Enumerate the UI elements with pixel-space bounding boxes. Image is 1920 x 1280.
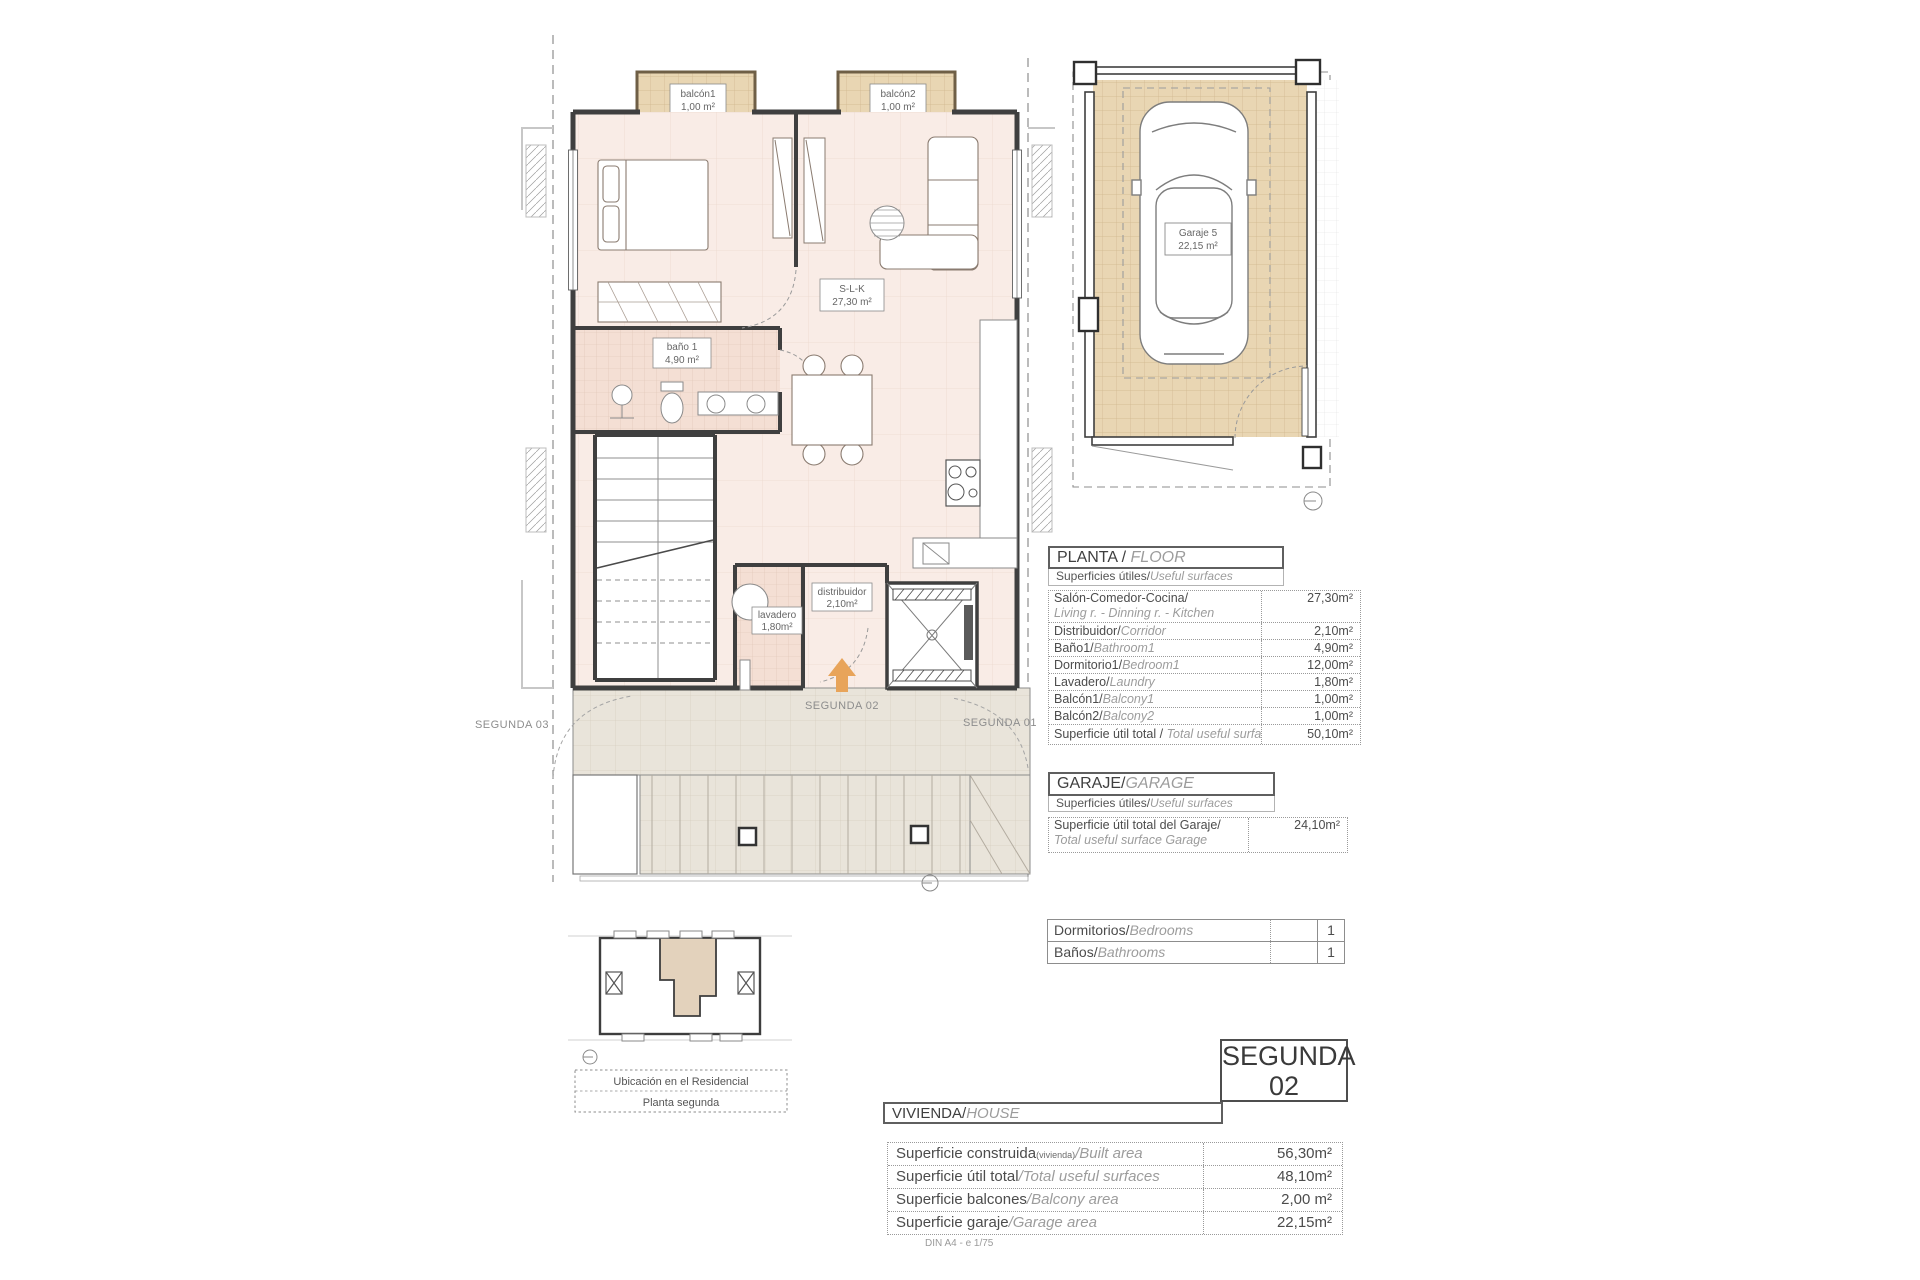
row-label-en: Bedroom1 [1122, 658, 1180, 672]
pillar [739, 828, 756, 845]
toilet [661, 393, 683, 423]
table-row: Baño1/Bathroom1 4,90m² [1049, 639, 1360, 656]
unit-badge-line1: SEGUNDA [1222, 1041, 1346, 1071]
garage-area: 22,15 m² [1178, 241, 1218, 252]
balcony1-area: 1,00 m² [681, 102, 716, 113]
stairs [597, 437, 713, 678]
slk-label: S-L-K 27,30 m² [820, 279, 884, 311]
viv-label-en: /Garage area [1009, 1214, 1097, 1231]
terrace [553, 688, 1030, 881]
garaje-table-subtitle: Superficies útiles/Useful surfaces [1048, 796, 1275, 812]
row-value: 12,00m² [1261, 657, 1360, 673]
neighbor-rail-left2 [526, 448, 546, 532]
garaje-table: Superficie útil total del Garaje/ Total … [1048, 817, 1348, 853]
row-label-es: Salón-Comedor-Cocina/ [1054, 591, 1188, 605]
bath-area: 4,90 m² [665, 355, 700, 366]
garaje-title-es: GARAJE/ [1057, 775, 1125, 792]
viv-label-es: Superficie balcones [896, 1191, 1027, 1208]
location-line2: Planta segunda [643, 1097, 720, 1109]
mirror-right [1247, 180, 1256, 195]
viv-value: 56,30m² [1203, 1143, 1342, 1165]
row-label-en: Living r. - Dinning r. - Kitchen [1054, 606, 1214, 620]
garaje-subtitle-en: Useful surfaces [1150, 796, 1233, 810]
neighbor-rail-right2 [1032, 448, 1052, 532]
row-label-en: Corridor [1121, 624, 1166, 638]
total-label-en: Total useful surface [1167, 727, 1261, 741]
unit-badge: SEGUNDA 02 [1220, 1039, 1348, 1102]
terrace-left-landing [573, 775, 637, 874]
viv-label-es: Superficie construida [896, 1145, 1036, 1162]
neighbor-rail-left [526, 145, 546, 217]
orientation-mark-icon [922, 875, 938, 891]
pillow [603, 166, 619, 202]
viv-label-es: Superficie garaje [896, 1214, 1009, 1231]
row-value: 2,10m² [1261, 623, 1360, 639]
planta-table-title: PLANTA / FLOOR [1048, 546, 1284, 569]
table-row: Dormitorio1/Bedroom1 12,00m² [1049, 656, 1360, 673]
neighbor-right-label: SEGUNDA 01 [963, 717, 1037, 729]
laundry-name: lavadero [758, 610, 797, 621]
planta-subtitle-es: Superficies útiles/ [1056, 569, 1150, 583]
neighbor-left-label: SEGUNDA 03 [475, 719, 549, 731]
vivienda-table: Superficie construida(vivienda)/Built ar… [887, 1142, 1343, 1235]
mirror-left [1132, 180, 1141, 195]
vivienda-table-title: VIVIENDA/HOUSE [883, 1102, 1223, 1124]
row-label-en: Balcony1 [1103, 692, 1154, 706]
garage-label: Garaje 5 22,15 m² [1165, 223, 1231, 255]
wardrobe [598, 282, 721, 322]
count-value: 1 [1317, 942, 1344, 963]
planta-subtitle-en: Useful surfaces [1150, 569, 1233, 583]
table-row: Baños/Bathrooms 1 [1048, 941, 1344, 963]
unit-badge-line2: 02 [1222, 1071, 1346, 1101]
basin-counter [698, 392, 778, 415]
row-label-es: Balcón2/ [1054, 709, 1103, 723]
planta-table-subtitle: Superficies útiles/Useful surfaces [1048, 569, 1284, 586]
balcony1-name: balcón1 [680, 89, 715, 100]
slk-area: 27,30 m² [832, 297, 872, 308]
planta-title-en: FLOOR [1131, 549, 1186, 566]
viv-label-sub: (vivienda) [1036, 1150, 1075, 1160]
row-label-en: Total useful surface Garage [1054, 833, 1207, 847]
table-row: Superficie balcones/Balcony area 2,00 m² [888, 1188, 1342, 1211]
row-label-es: Superficie útil total del Garaje/ [1054, 818, 1221, 832]
garage-side-strip [1315, 80, 1339, 437]
laundry-area: 1,80m² [761, 622, 793, 633]
viv-label-es: Superficie útil total [896, 1168, 1019, 1185]
location-label-box: Ubicación en el Residencial Planta segun… [575, 1070, 787, 1112]
count-label-en: Bathrooms [1098, 944, 1166, 960]
row-value: 24,10m² [1248, 818, 1347, 852]
row-label-es: Dormitorio1/ [1054, 658, 1122, 672]
floorplan-sheet: balcón1 1,00 m² balcón2 1,00 m² [0, 0, 1920, 1280]
round-rug [870, 206, 904, 240]
table-row: Salón-Comedor-Cocina/ Living r. - Dinnin… [1049, 591, 1360, 622]
row-value: 1,00m² [1261, 708, 1360, 724]
garage-name: Garaje 5 [1179, 228, 1218, 239]
row-value: 1,80m² [1261, 674, 1360, 690]
row-value: 27,30m² [1261, 591, 1360, 622]
pillar [911, 826, 928, 843]
row-label-en: Laundry [1110, 675, 1155, 689]
pedestal-sink [612, 385, 632, 405]
bed [598, 160, 708, 250]
bath-label: baño 1 4,90 m² [653, 338, 711, 368]
table-row: Superficie garaje/Garage area 22,15m² [888, 1211, 1342, 1234]
garaje-subtitle-es: Superficies útiles/ [1056, 796, 1150, 810]
viv-label-en: /Built area [1075, 1145, 1143, 1162]
slk-name: S-L-K [839, 284, 865, 295]
count-label-en: Bedrooms [1129, 922, 1193, 938]
table-row: Balcón2/Balcony2 1,00m² [1049, 707, 1360, 724]
total-value: 50,10m² [1261, 725, 1360, 744]
garaje-title-en: GARAGE [1125, 775, 1193, 792]
counts-table: Dormitorios/Bedrooms 1 Baños/Bathrooms 1 [1047, 919, 1345, 964]
location-plan: Ubicación en el Residencial Planta segun… [560, 920, 800, 1120]
count-value: 1 [1317, 920, 1344, 941]
viv-label-en: /Total useful surfaces [1019, 1168, 1160, 1185]
table-row: Superficie útil total/Total useful surfa… [888, 1165, 1342, 1188]
garage-door-leaf [1302, 368, 1308, 436]
main-floor-plan: balcón1 1,00 m² balcón2 1,00 m² [440, 20, 1060, 900]
balcony2-name: balcón2 [880, 89, 915, 100]
orientation-mark-icon [1304, 492, 1322, 510]
row-label-en: Bathroom1 [1094, 641, 1155, 655]
terrace-edge-rail [580, 876, 1028, 881]
table-row: Balcón1/Balcony1 1,00m² [1049, 690, 1360, 707]
total-label-es: Superficie útil total / [1054, 727, 1167, 741]
ramp-line [1092, 446, 1233, 470]
table-total-row: Superficie útil total / Total useful sur… [1049, 724, 1360, 744]
garage-plan: Garaje 5 22,15 m² [1060, 40, 1350, 520]
balcony2-area: 1,00 m² [881, 102, 916, 113]
row-label-en: Balcony2 [1103, 709, 1154, 723]
table-row: Superficie construida(vivienda)/Built ar… [888, 1143, 1342, 1165]
row-value: 1,00m² [1261, 691, 1360, 707]
orientation-mark-icon [583, 1050, 597, 1064]
viv-value: 48,10m² [1203, 1166, 1342, 1188]
stove [946, 460, 980, 506]
viv-value: 22,15m² [1203, 1212, 1342, 1234]
corridor-label: distribuidor 2,10m² [812, 583, 872, 611]
planta-title-es: PLANTA / [1057, 549, 1131, 566]
count-label-es: Dormitorios/ [1054, 922, 1129, 938]
unit-label: SEGUNDA 02 [805, 700, 879, 712]
location-line1: Ubicación en el Residencial [613, 1076, 748, 1088]
elevator [887, 583, 977, 688]
vivienda-title-en: HOUSE [966, 1105, 1019, 1122]
row-label-es: Distribuidor/ [1054, 624, 1121, 638]
pillow [603, 206, 619, 242]
table-row: Superficie útil total del Garaje/ Total … [1049, 818, 1347, 852]
garaje-table-title: GARAJE/GARAGE [1048, 772, 1275, 796]
viv-label-en: /Balcony area [1027, 1191, 1119, 1208]
neighbor-rail-right [1032, 145, 1052, 217]
table-row: Lavadero/Laundry 1,80m² [1049, 673, 1360, 690]
viv-value: 2,00 m² [1203, 1189, 1342, 1211]
vivienda-title-es: VIVIENDA/ [892, 1105, 966, 1122]
bath-name: baño 1 [667, 342, 698, 353]
row-value: 4,90m² [1261, 640, 1360, 656]
row-label-es: Lavadero/ [1054, 675, 1110, 689]
table-row: Dormitorios/Bedrooms 1 [1048, 920, 1344, 941]
count-label-es: Baños/ [1054, 944, 1098, 960]
scale-caption: DIN A4 - e 1/75 [925, 1238, 993, 1249]
table-row: Distribuidor/Corridor 2,10m² [1049, 622, 1360, 639]
corridor-area: 2,10m² [826, 599, 858, 610]
planta-table: Salón-Comedor-Cocina/ Living r. - Dinnin… [1048, 590, 1361, 745]
row-label-es: Baño1/ [1054, 641, 1094, 655]
row-label-es: Balcón1/ [1054, 692, 1103, 706]
corridor-name: distribuidor [818, 587, 868, 598]
